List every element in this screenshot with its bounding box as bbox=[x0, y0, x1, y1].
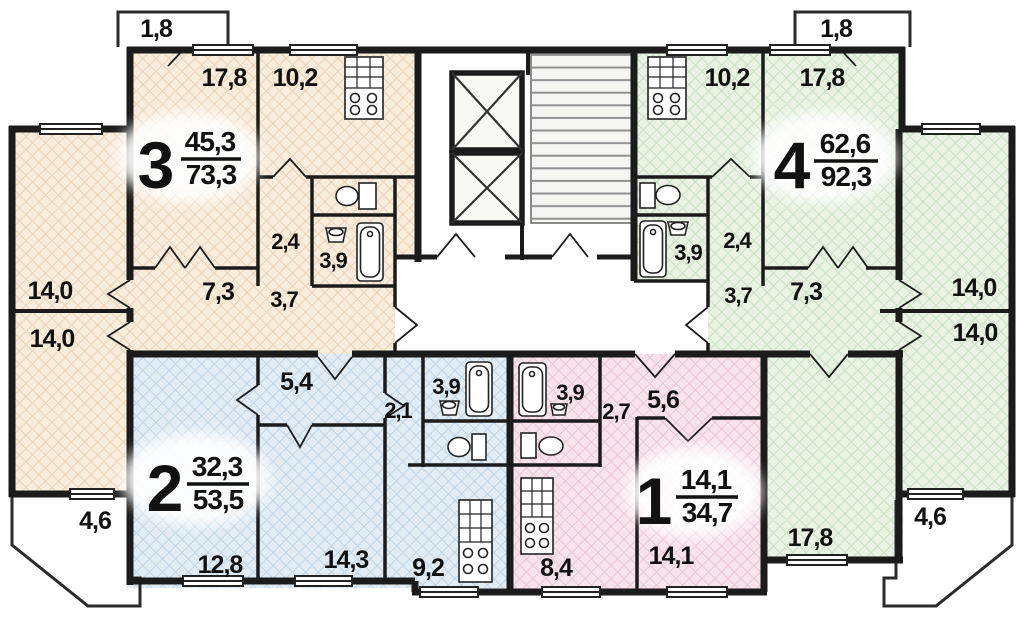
window bbox=[70, 489, 114, 499]
apt4-number: 4 bbox=[774, 128, 811, 202]
sink-icon bbox=[551, 404, 567, 415]
core-block bbox=[452, 53, 634, 223]
apt3-balcony-label: 1,8 bbox=[140, 15, 173, 43]
apt4-lower-room-texture bbox=[764, 354, 903, 563]
apt4-hall-label: 7,3 bbox=[790, 278, 822, 306]
window bbox=[40, 124, 102, 134]
apt2-bath-label: 3,9 bbox=[432, 374, 460, 399]
apt4-room-top-label: 17,8 bbox=[800, 64, 846, 92]
bathtub-icon bbox=[357, 223, 383, 281]
balcony-bottom-left bbox=[12, 497, 140, 606]
floor-plan: 3 45,3 73,3 17,8 10,2 7,3 2,4 3,9 3,7 1,… bbox=[0, 0, 1024, 619]
window bbox=[770, 45, 830, 55]
apt4-entry-notch bbox=[634, 281, 708, 354]
apt2-corridor-label: 2,1 bbox=[384, 398, 412, 423]
apt2-room-left-label: 12,8 bbox=[198, 551, 244, 579]
apt4-living-area: 62,6 bbox=[820, 128, 871, 159]
balcony-bottom-right bbox=[884, 497, 1012, 606]
apt2-number: 2 bbox=[147, 451, 182, 525]
window bbox=[908, 489, 963, 499]
apt1-bath-label: 3,9 bbox=[556, 380, 584, 405]
sink-icon bbox=[326, 228, 346, 242]
stove-icon bbox=[521, 478, 553, 554]
sink-icon bbox=[668, 222, 688, 235]
bathtub-icon bbox=[640, 221, 666, 277]
staircase bbox=[531, 53, 634, 223]
apt2-kitchen-label: 9,2 bbox=[412, 554, 444, 582]
apt2-hall-label: 5,4 bbox=[280, 368, 313, 396]
window bbox=[295, 576, 352, 586]
left-wing-balcony-label: 4,6 bbox=[79, 507, 111, 535]
apt3-bath-label: 3,9 bbox=[319, 248, 347, 273]
apt3-closet-label: 2,4 bbox=[271, 229, 300, 254]
apt1-number: 1 bbox=[636, 464, 671, 538]
left-wing-room-upper-label: 14,0 bbox=[28, 277, 73, 305]
window bbox=[667, 587, 727, 597]
apt2-total-area: 53,5 bbox=[193, 484, 244, 515]
stove-icon bbox=[345, 57, 383, 119]
elevator-shaft-1 bbox=[452, 73, 522, 150]
apt3-hall-label: 7,3 bbox=[202, 278, 234, 306]
apt3-total-area: 73,3 bbox=[186, 159, 237, 190]
right-wing-balcony-label: 4,6 bbox=[914, 503, 946, 531]
apt1-hall-label: 5,6 bbox=[647, 386, 679, 414]
apt4-bath-label: 3,9 bbox=[674, 240, 702, 265]
sink-icon bbox=[440, 401, 459, 415]
window bbox=[193, 45, 253, 55]
stove-icon bbox=[648, 57, 686, 119]
bathtub-icon bbox=[519, 363, 546, 416]
apt1-corridor-label: 2,7 bbox=[602, 399, 630, 424]
apt3-kitchen-label: 10,2 bbox=[273, 64, 318, 92]
apt3-number: 3 bbox=[138, 128, 173, 202]
window bbox=[542, 587, 600, 597]
window bbox=[922, 124, 980, 134]
right-wing-room-upper-label: 14,0 bbox=[952, 274, 997, 302]
apt2-room-mid-label: 14,3 bbox=[324, 546, 369, 574]
apt4-closet-label: 2,4 bbox=[723, 228, 752, 253]
apt3-living-area: 45,3 bbox=[185, 126, 236, 157]
bathtub-icon bbox=[466, 362, 492, 416]
right-wing-room-lower-label: 14,0 bbox=[953, 319, 998, 347]
apt3-corridor-label: 3,7 bbox=[270, 287, 298, 312]
apt4-total-area: 92,3 bbox=[821, 161, 872, 192]
elevator-shaft-2 bbox=[452, 153, 522, 223]
window bbox=[420, 587, 478, 597]
apt1-kitchen-label: 8,4 bbox=[540, 554, 573, 582]
apt4-balcony-label: 1,8 bbox=[820, 15, 853, 43]
apt1-total-area: 34,7 bbox=[682, 497, 733, 528]
apt4-corridor-label: 3,7 bbox=[724, 283, 752, 308]
apt4-kitchen-label: 10,2 bbox=[705, 64, 750, 92]
apt2-living-area: 32,3 bbox=[192, 451, 243, 482]
balcony-top-right bbox=[795, 12, 910, 47]
apt1-room-label: 14,1 bbox=[649, 542, 695, 570]
balcony-top-left bbox=[118, 12, 228, 47]
window bbox=[787, 555, 847, 565]
door-lobby bbox=[437, 234, 588, 257]
apt3-room-top-label: 17,8 bbox=[202, 64, 248, 92]
window bbox=[290, 45, 357, 55]
window bbox=[667, 45, 727, 55]
left-wing-room-lower-label: 14,0 bbox=[30, 325, 75, 353]
stove-icon bbox=[459, 500, 492, 582]
apt4-room-bottom-label: 17,8 bbox=[788, 524, 834, 552]
apt1-living-area: 14,1 bbox=[681, 464, 732, 495]
